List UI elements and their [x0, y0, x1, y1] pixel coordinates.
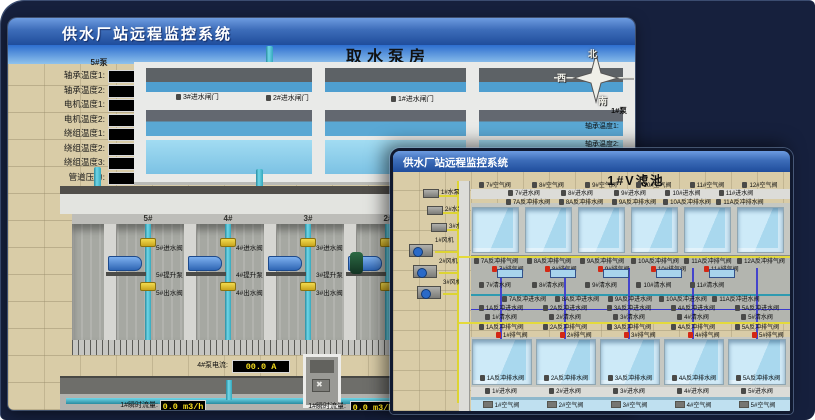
valve-label: 4#进水阀	[236, 245, 263, 252]
valve-label[interactable]: 8#清水阀	[523, 282, 573, 290]
readout-label: 绕组温度3:	[8, 158, 105, 168]
bay-label: 5#	[136, 214, 160, 223]
outlet-valve-icon[interactable]	[140, 282, 156, 291]
valve-label[interactable]: 2A反冲排水阀	[538, 375, 594, 383]
valve-label[interactable]: 5#进水阀	[729, 388, 785, 396]
dosing-tank-icon[interactable]	[350, 252, 363, 274]
flow-value: 0.0 m3/h	[160, 400, 206, 410]
bay-label: 3#	[296, 214, 320, 223]
valve-label[interactable]: 11#进水阀	[711, 190, 761, 198]
valve-label[interactable]: 11A反冲进水阀	[709, 296, 763, 304]
readout-label: 轴承温度1:	[585, 123, 619, 131]
valve-label[interactable]: 10#空气阀	[629, 182, 679, 190]
floor-pier	[264, 224, 276, 340]
valve-label[interactable]: 9#空气阀	[576, 182, 626, 190]
valve-label[interactable]: 9#清水阀	[576, 282, 626, 290]
valve-label[interactable]: 7#空气阀	[470, 182, 520, 190]
valve-label[interactable]: 2#空气阀	[537, 401, 593, 410]
valve-label: 3#进水阀	[316, 245, 343, 252]
feed-line-icon	[443, 293, 457, 295]
pump-label: 3#提升泵	[316, 272, 343, 279]
valve-label[interactable]: 3A反冲进水阀	[601, 305, 657, 313]
valve-label[interactable]: 5A反冲排水阀	[730, 375, 786, 383]
pump5-panel-header: 5#泵	[69, 58, 129, 67]
back-window-title: 供水厂站远程监控系统	[62, 23, 232, 44]
current-value: 00.0 A	[232, 360, 290, 373]
valve-label[interactable]: 7A反冲排水阀	[501, 199, 555, 207]
pump1-panel-header: 1#泵	[611, 107, 627, 116]
valve-label[interactable]: 8#空气阀	[523, 182, 573, 190]
pump-base	[186, 272, 226, 276]
water-seal-box	[656, 269, 682, 278]
readout-label: 轴承温度1:	[8, 71, 105, 81]
valve-label[interactable]: 3A反冲排气阀	[601, 324, 657, 332]
filter-cell[interactable]	[631, 207, 678, 253]
valve-label[interactable]: 3#进水阀	[601, 388, 657, 396]
valve-label[interactable]: 10A反冲排水阀	[660, 199, 714, 207]
back-window-titlebar[interactable]: 供水厂站远程监控系统	[8, 18, 635, 45]
desktop-background: 供水厂站远程监控系统 取水泵房 5#泵 轴承温度1:100.0℃ 轴承温度2:1…	[0, 0, 815, 420]
gate-valve-label[interactable]: 2#进水闸门	[266, 95, 309, 103]
front-window-title: 供水厂站远程监控系统	[403, 155, 508, 170]
valve-label[interactable]: 10#清水阀	[629, 282, 679, 290]
filter-cell[interactable]	[578, 207, 625, 253]
valve-label[interactable]: 2#清水阀	[537, 314, 593, 322]
readout-label: 绕组温度2:	[8, 144, 105, 154]
floor-pier	[184, 224, 196, 340]
readout-label: 电机温度2:	[8, 115, 105, 125]
pump-label: 5#提升泵	[156, 272, 183, 279]
valve-label: 5#进水阀	[156, 245, 183, 252]
readout-label: 轴承温度2:	[8, 86, 105, 96]
outlet-valve-icon[interactable]	[220, 282, 236, 291]
valve-label[interactable]: 7A反冲排气阀	[470, 258, 522, 266]
valve-label[interactable]: 1A反冲排水阀	[474, 375, 530, 383]
valve-label[interactable]: 2#进水阀	[537, 388, 593, 396]
water-seal-box	[550, 269, 576, 278]
gate-valve-label[interactable]: 1#进水闸门	[391, 96, 434, 104]
readout-label: 电机温度1:	[8, 100, 105, 110]
valve-label[interactable]: 8#进水阀	[552, 190, 602, 198]
flow-meter-icon[interactable]	[303, 354, 341, 408]
readout-label: 管道压力:	[8, 173, 105, 183]
flow-meter-display	[310, 360, 334, 373]
valve-label[interactable]: 5A反冲进水阀	[729, 305, 785, 313]
valve-label[interactable]: 11A反冲排气阀	[682, 258, 734, 266]
pump-label: 4#提升泵	[236, 272, 263, 279]
blower-fan-icon[interactable]	[413, 265, 437, 278]
valve-label[interactable]: 10A反冲排气阀	[629, 258, 681, 266]
valve-label[interactable]: 4#空气阀	[665, 401, 721, 410]
valve-label[interactable]: 2A反冲排气阀	[537, 324, 593, 332]
lift-pump-icon[interactable]	[268, 256, 302, 271]
valve-label[interactable]: 5#清水阀	[729, 314, 785, 322]
inlet-valve-icon[interactable]	[140, 238, 156, 247]
valve-label[interactable]: 2A反冲进水阀	[537, 305, 593, 313]
valve-label[interactable]: 3#清水阀	[601, 314, 657, 322]
valve-label[interactable]: 12#空气阀	[735, 182, 785, 190]
valve-label[interactable]: 11#清水阀	[682, 282, 732, 290]
valve-label[interactable]: 5A反冲排气阀	[729, 324, 785, 332]
walkway	[459, 181, 469, 411]
readout-label: 绕组温度1:	[8, 129, 105, 139]
blower-fan-icon[interactable]	[409, 244, 433, 257]
valve-label[interactable]: 9A反冲进水阀	[603, 296, 657, 304]
feed-line-icon	[435, 251, 457, 253]
water-pump-icon[interactable]	[423, 189, 439, 198]
valve-label[interactable]: 10A反冲进水阀	[656, 296, 710, 304]
valve-label[interactable]: 1#进水阀	[473, 388, 529, 396]
water-pump-icon[interactable]	[427, 206, 443, 215]
valve-label[interactable]: 9#进水阀	[605, 190, 655, 198]
valve-label[interactable]: 8A反冲排水阀	[554, 199, 608, 207]
front-window-titlebar[interactable]: 供水厂站远程监控系统	[393, 151, 790, 172]
water-seal-box	[497, 269, 523, 278]
intake-channel-mid	[146, 110, 623, 136]
valve-label[interactable]: 7#进水阀	[499, 190, 549, 198]
valve-label[interactable]: 12A反冲排气阀	[735, 258, 787, 266]
inlet-valve-icon[interactable]	[300, 238, 316, 247]
valve-label[interactable]: 1A反冲进水阀	[473, 305, 529, 313]
valve-label[interactable]: 1A反冲排气阀	[473, 324, 529, 332]
valve-label[interactable]: 9A反冲排水阀	[607, 199, 661, 207]
floor-pier	[344, 224, 356, 340]
valve-label[interactable]: 7A反冲进水阀	[497, 296, 551, 304]
valve-label[interactable]: 11#空气阀	[682, 182, 732, 190]
flow-meter-device	[312, 379, 330, 392]
filter-cell[interactable]	[525, 207, 572, 253]
valve-label[interactable]: 1#清水阀	[473, 314, 529, 322]
valve-label[interactable]: 10#进水阀	[658, 190, 708, 198]
feed-line-icon	[439, 272, 457, 274]
water-seal-box	[709, 269, 735, 278]
valve-label[interactable]: 9A反冲排气阀	[576, 258, 628, 266]
filter-cell[interactable]	[737, 207, 784, 253]
filter-scene: 1#V滤池 1#水泵 2#水泵 3#水泵 1#风机 2#风机 3#风机	[393, 172, 790, 411]
valve-label[interactable]: 1#空气阀	[473, 401, 529, 410]
valve-label: 3#出水阀	[316, 290, 343, 297]
valve-label: 4#出水阀	[236, 290, 263, 297]
valve-label[interactable]: 3#空气阀	[601, 401, 657, 410]
floor-pier	[104, 224, 116, 340]
outlet-valve-icon[interactable]	[300, 282, 316, 291]
flow-label: 1#瞬时流量:	[96, 402, 158, 410]
water-seal-box	[603, 269, 629, 278]
valve-label: 5#出水阀	[156, 290, 183, 297]
gate-valve-label[interactable]: 3#进水闸门	[176, 94, 219, 102]
valve-label[interactable]: 4A反冲排气阀	[665, 324, 721, 332]
filter-cell[interactable]	[472, 207, 519, 253]
valve-label[interactable]: 4A反冲排水阀	[666, 375, 722, 383]
blower-fan-icon[interactable]	[417, 286, 441, 299]
pipe-stub-icon	[226, 380, 232, 400]
valve-label[interactable]: 5#空气阀	[729, 401, 785, 410]
filter-cell[interactable]	[684, 207, 731, 253]
lift-pump-icon[interactable]	[108, 256, 142, 271]
valve-label[interactable]: 7#清水阀	[470, 282, 520, 290]
pump-base	[266, 272, 306, 276]
flow-label: 1#瞬时流量:	[284, 403, 346, 410]
valve-label[interactable]: 4#进水阀	[665, 388, 721, 396]
inlet-valve-icon[interactable]	[220, 238, 236, 247]
valve-label[interactable]: 4A反冲进水阀	[665, 305, 721, 313]
front-window: 供水厂站远程监控系统 1#V滤池 1#水泵 2#水泵 3#水泵 1#风机 2#风…	[390, 148, 793, 414]
compass-west-label: 西	[557, 71, 566, 84]
current-label: 4#泵电流:	[166, 362, 228, 370]
lift-pump-icon[interactable]	[188, 256, 222, 271]
valve-label[interactable]: 4#清水阀	[665, 314, 721, 322]
compass-north-label: 北	[588, 47, 597, 60]
valve-label[interactable]: 11A反冲排水阀	[713, 199, 767, 207]
valve-label[interactable]: 8A反冲进水阀	[550, 296, 604, 304]
water-pump-icon[interactable]	[431, 223, 447, 232]
valve-label[interactable]: 3A反冲排水阀	[602, 375, 658, 383]
basin-pier	[312, 68, 325, 174]
bay-label: 4#	[216, 214, 240, 223]
valve-label[interactable]: 8A反冲排气阀	[523, 258, 575, 266]
pump-base	[106, 272, 146, 276]
compass-south-label: 南	[598, 94, 607, 107]
